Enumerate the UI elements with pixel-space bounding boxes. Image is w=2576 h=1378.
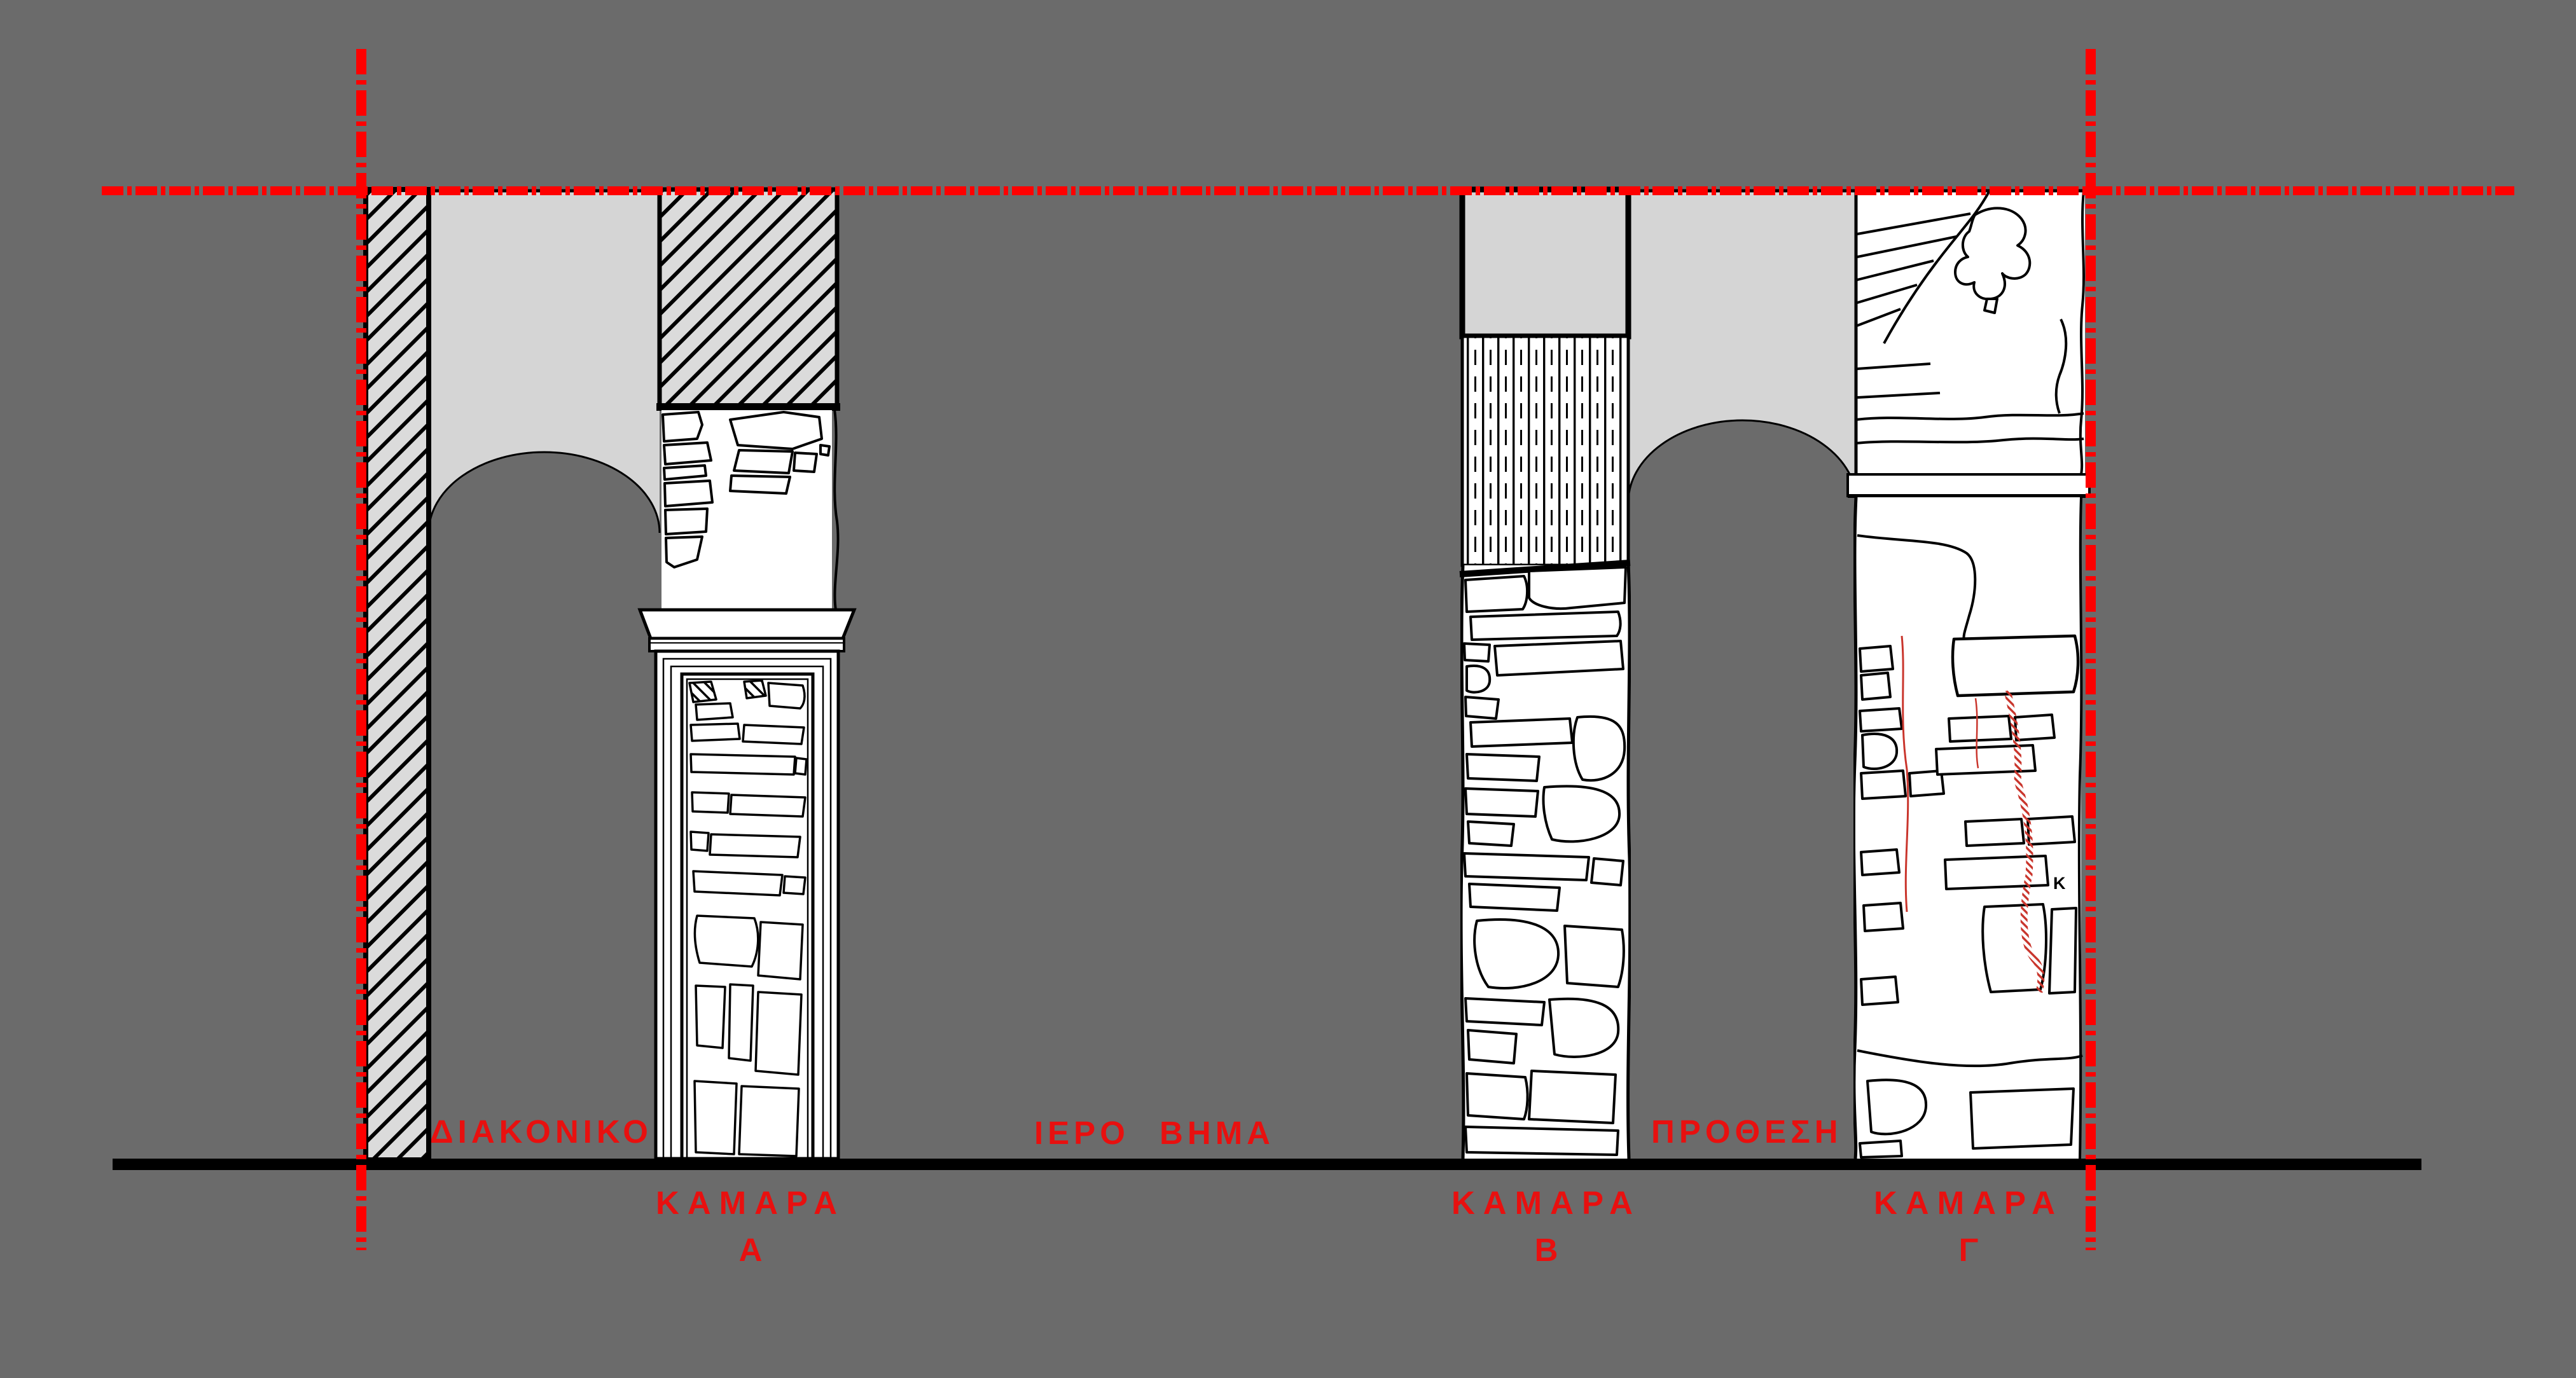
vault-label-kamara-b-word: ΚΑΜΑΡΑ [1441, 1185, 1651, 1221]
section-drawing-canvas: Κ [0, 0, 2576, 1378]
elevation-drawing: Κ ΔΙΑΚΟΝΙΚΟ ΙΕΡΟ ΒΗΜΑ ΠΡΟΘΕΣΗ ΚΑΜΑΡΑ Α Κ… [0, 0, 2576, 1378]
vault-b-wall [1628, 189, 1857, 502]
pier-g-cornice-band [1848, 474, 2093, 496]
pier-kamara-a [640, 189, 854, 1159]
room-label-iero-vima: ΙΕΡΟ ΒΗΜΑ [1034, 1115, 1275, 1151]
pier-a-capital [640, 610, 854, 651]
vault-label-kamara-a-word: ΚΑΜΑΡΑ [646, 1185, 855, 1221]
ground-line [113, 1159, 2421, 1170]
room-label-prothesi: ΠΡΟΘΕΣΗ [1651, 1114, 1843, 1150]
vault-label-kamara-a-letter: Α [646, 1232, 855, 1268]
vault-label-kamara-g-letter: Γ [1864, 1232, 2074, 1268]
vault-a-wall [429, 189, 660, 533]
stone-mark-k: Κ [2053, 874, 2066, 893]
pier-kamara-b [1460, 189, 1630, 1159]
room-label-diakoniko: ΔΙΑΚΟΝΙΚΟ [430, 1114, 653, 1150]
pier-a-masonry [661, 410, 838, 610]
vault-label-kamara-g-word: ΚΑΜΑΡΑ [1864, 1185, 2074, 1221]
pier-kamara-g: Κ [1848, 189, 2093, 1159]
vault-label-kamara-b-letter: Β [1441, 1232, 1651, 1268]
sectioned-west-wall [366, 189, 429, 1160]
